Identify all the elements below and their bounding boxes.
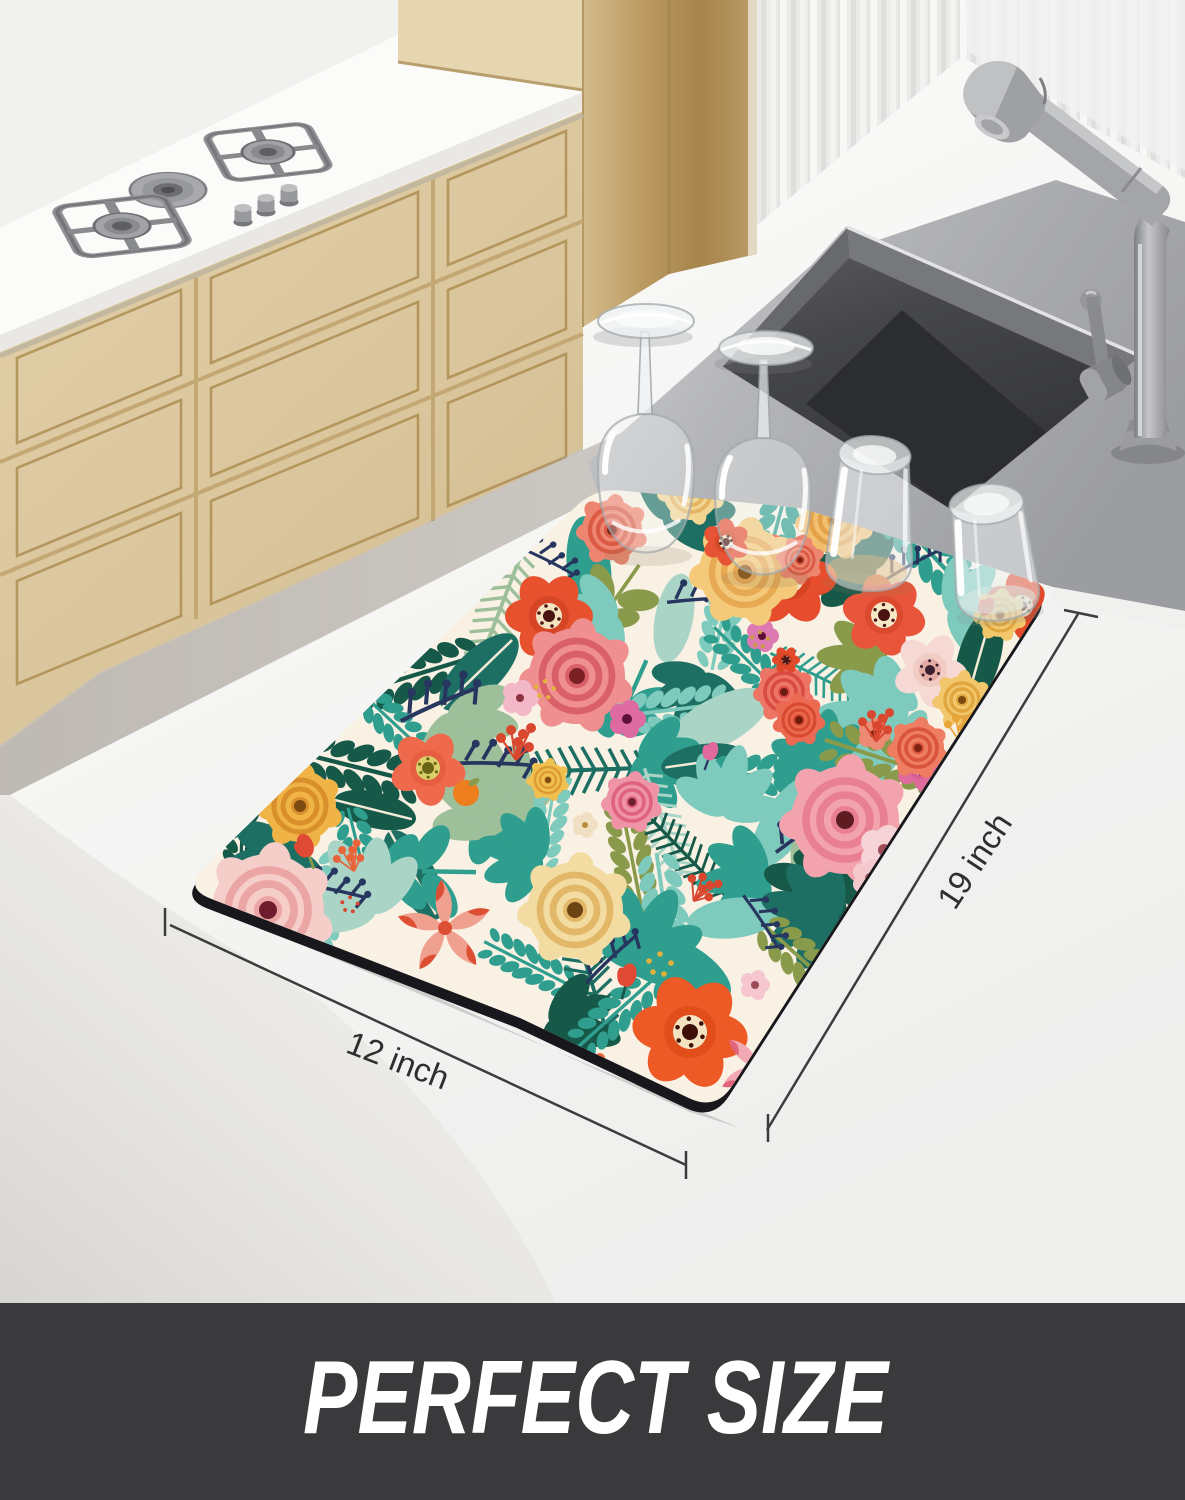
svg-text:PERFECT SIZE: PERFECT SIZE — [303, 1340, 890, 1456]
